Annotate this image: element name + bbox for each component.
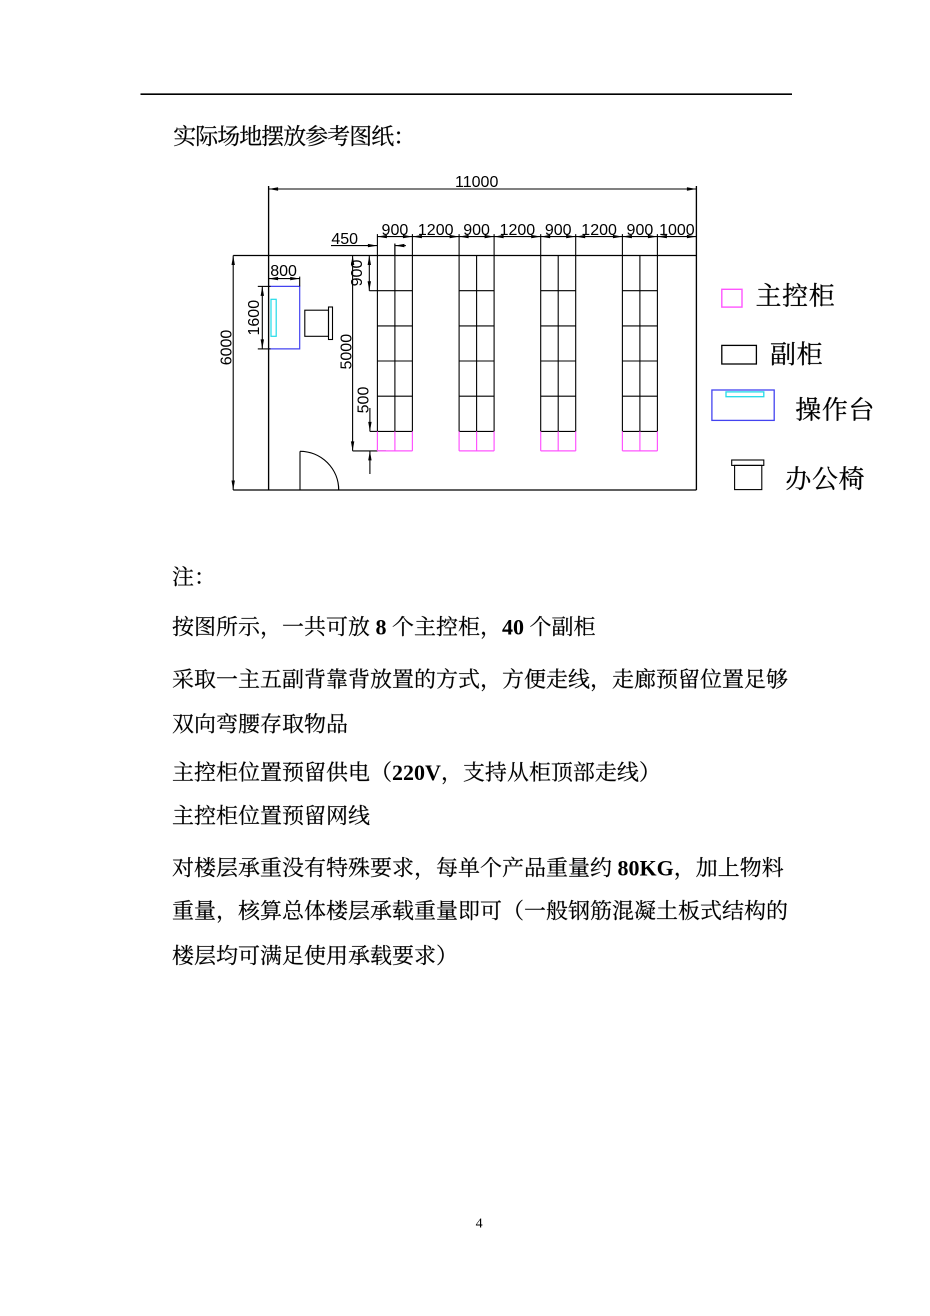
svg-text:900: 900	[545, 222, 572, 239]
svg-text:900: 900	[349, 260, 366, 287]
svg-text:900: 900	[382, 222, 409, 239]
svg-text:1200: 1200	[581, 222, 617, 239]
svg-text:6000: 6000	[218, 330, 235, 366]
svg-text:800: 800	[270, 263, 297, 280]
svg-text:900: 900	[627, 222, 654, 239]
svg-text:500: 500	[355, 387, 372, 414]
svg-text:1200: 1200	[500, 222, 536, 239]
svg-text:1200: 1200	[418, 222, 454, 239]
svg-text:450: 450	[331, 231, 358, 248]
svg-text:4: 4	[476, 1216, 483, 1231]
svg-text:5000: 5000	[339, 334, 356, 370]
svg-text:40: 40	[502, 614, 524, 639]
svg-text:1600: 1600	[246, 300, 263, 336]
svg-text:11000: 11000	[455, 174, 498, 191]
svg-text:900: 900	[463, 222, 490, 239]
svg-text:1000: 1000	[659, 222, 695, 239]
svg-text:220V: 220V	[392, 760, 441, 785]
svg-text:80KG: 80KG	[618, 855, 674, 880]
svg-text:8: 8	[376, 614, 387, 639]
